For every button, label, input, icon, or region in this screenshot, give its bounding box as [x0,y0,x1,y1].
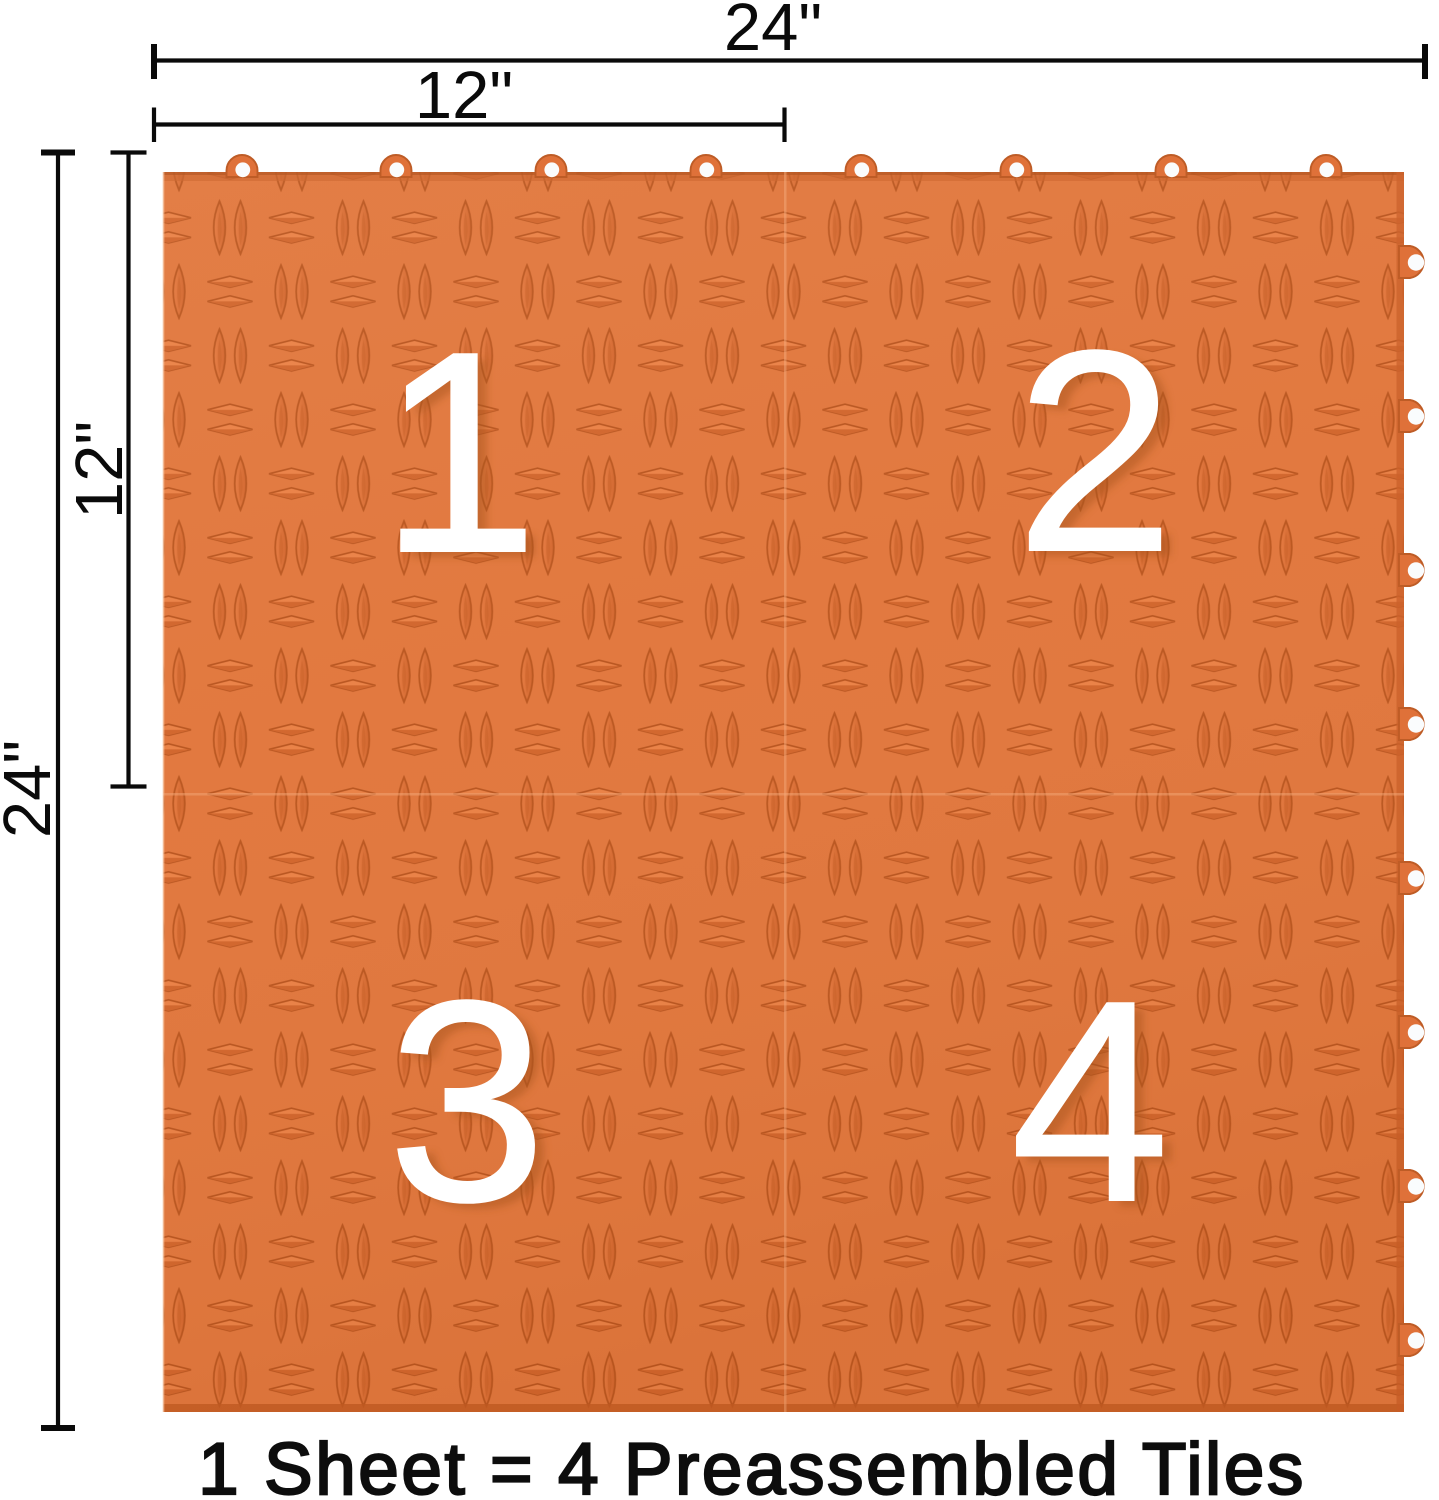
svg-text:1 Sheet = 4 Preassembled Tiles: 1 Sheet = 4 Preassembled Tiles [198,1429,1306,1500]
svg-text:12": 12" [62,421,137,519]
svg-text:2: 2 [1015,291,1174,611]
svg-text:1: 1 [379,292,538,612]
svg-text:24": 24" [0,740,65,838]
svg-text:4: 4 [1010,941,1169,1261]
svg-text:3: 3 [387,941,546,1261]
svg-text:24": 24" [724,0,822,65]
svg-text:12": 12" [415,58,513,133]
